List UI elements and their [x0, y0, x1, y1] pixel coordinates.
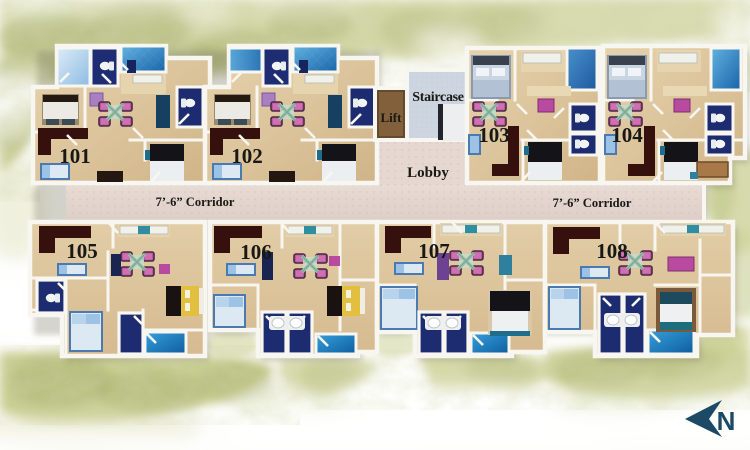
svg-text:Lift: Lift	[381, 110, 403, 125]
svg-text:101: 101	[59, 144, 91, 168]
svg-text:7’-6” Corridor: 7’-6” Corridor	[553, 196, 632, 210]
svg-text:104: 104	[611, 123, 643, 147]
svg-text:102: 102	[231, 144, 263, 168]
svg-text:N: N	[717, 406, 736, 436]
svg-text:103: 103	[478, 123, 510, 147]
svg-text:105: 105	[66, 239, 98, 263]
svg-text:Lobby: Lobby	[407, 165, 449, 181]
svg-text:Staircase: Staircase	[412, 90, 464, 105]
svg-text:108: 108	[596, 239, 628, 263]
svg-text:107: 107	[418, 239, 450, 263]
svg-text:7’-6” Corridor: 7’-6” Corridor	[156, 195, 235, 209]
svg-text:106: 106	[240, 240, 272, 264]
